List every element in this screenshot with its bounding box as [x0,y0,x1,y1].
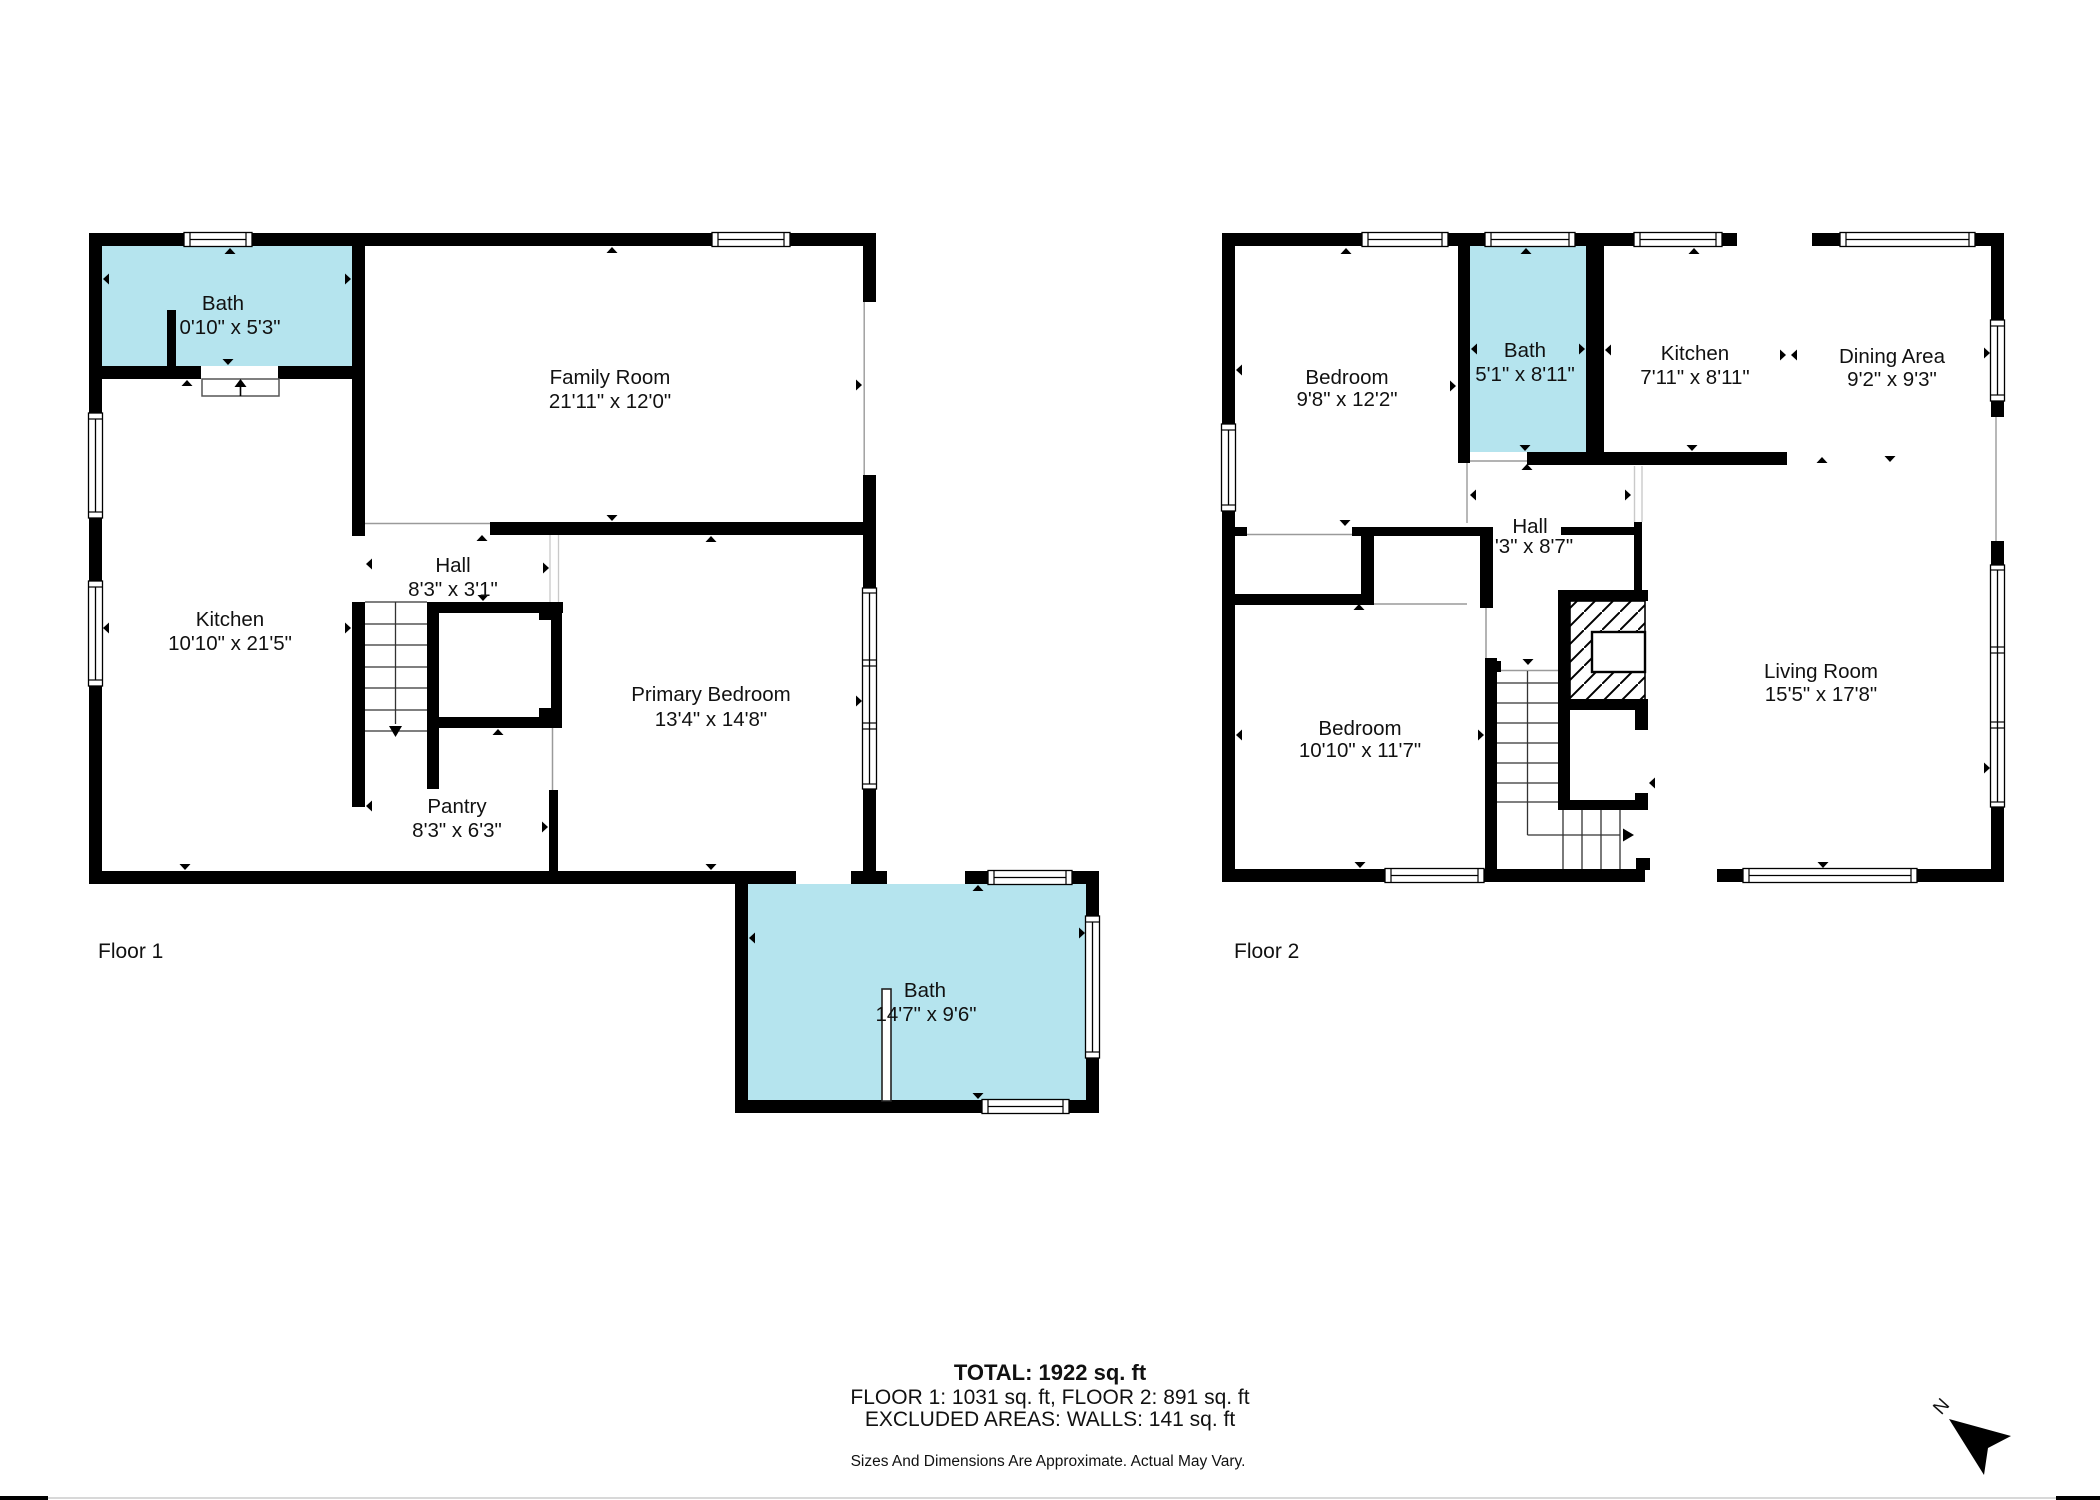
svg-text:Bath: Bath [904,979,946,1002]
svg-text:8'3" x 6'3": 8'3" x 6'3" [412,819,502,842]
svg-text:Living Room: Living Room [1764,660,1878,683]
svg-text:TOTAL: 1922 sq. ft: TOTAL: 1922 sq. ft [954,1360,1147,1385]
svg-text:Dining Area: Dining Area [1839,345,1946,368]
svg-text:21'11" x 12'0": 21'11" x 12'0" [549,390,671,413]
svg-text:Kitchen: Kitchen [196,608,264,631]
svg-text:EXCLUDED AREAS: WALLS: 141 sq.: EXCLUDED AREAS: WALLS: 141 sq. ft [865,1408,1236,1431]
svg-text:Kitchen: Kitchen [1661,342,1729,365]
svg-text:FLOOR 1: 1031 sq. ft, FLOOR 2:: FLOOR 1: 1031 sq. ft, FLOOR 2: 891 sq. f… [850,1386,1249,1409]
svg-text:Bath: Bath [202,292,244,315]
svg-text:7'11" x 8'11": 7'11" x 8'11" [1640,366,1749,389]
svg-text:Primary Bedroom: Primary Bedroom [631,683,791,706]
svg-text:10'10" x 11'7": 10'10" x 11'7" [1299,739,1421,762]
svg-text:13'4" x 14'8": 13'4" x 14'8" [655,708,767,731]
svg-text:10'10" x 21'5": 10'10" x 21'5" [168,632,292,655]
svg-text:15'5" x 17'8": 15'5" x 17'8" [1765,683,1877,706]
svg-text:'3" x 8'7": '3" x 8'7" [1495,535,1573,558]
svg-text:9'8" x 12'2": 9'8" x 12'2" [1296,388,1397,411]
svg-text:5'1" x 8'11": 5'1" x 8'11" [1475,363,1575,386]
svg-text:Hall: Hall [435,554,470,577]
svg-text:14'7" x 9'6": 14'7" x 9'6" [875,1003,976,1026]
svg-text:Family Room: Family Room [550,366,671,389]
svg-text:Sizes And Dimensions Are Appro: Sizes And Dimensions Are Approximate. Ac… [851,1453,1246,1470]
svg-text:Bath: Bath [1504,339,1546,362]
svg-text:Bedroom: Bedroom [1305,366,1388,389]
svg-text:8'3" x 3'1": 8'3" x 3'1" [408,578,498,601]
svg-text:9'2" x 9'3": 9'2" x 9'3" [1847,368,1937,391]
svg-text:Pantry: Pantry [427,795,487,818]
svg-text:Bedroom: Bedroom [1318,717,1401,740]
svg-text:Floor 1: Floor 1 [98,940,163,963]
svg-text:0'10" x 5'3": 0'10" x 5'3" [179,316,280,339]
svg-text:Floor 2: Floor 2 [1234,940,1299,963]
